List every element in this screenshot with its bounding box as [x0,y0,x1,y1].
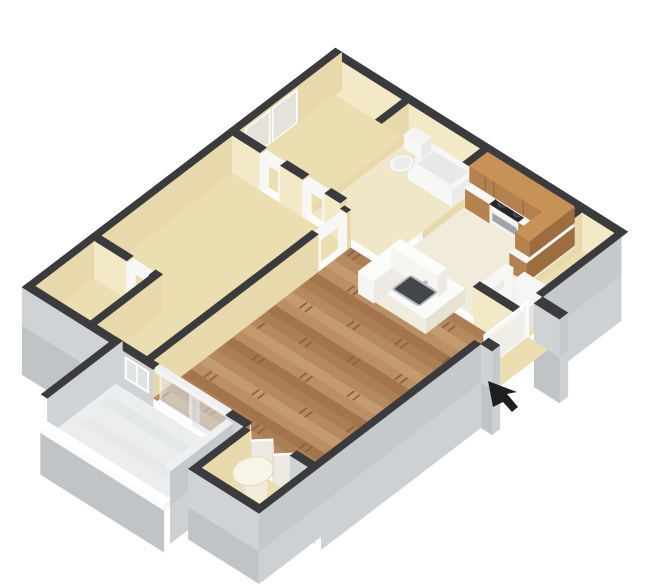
floor-plan-canvas [0,0,650,585]
floor-plan-3d-rendering [0,0,650,585]
